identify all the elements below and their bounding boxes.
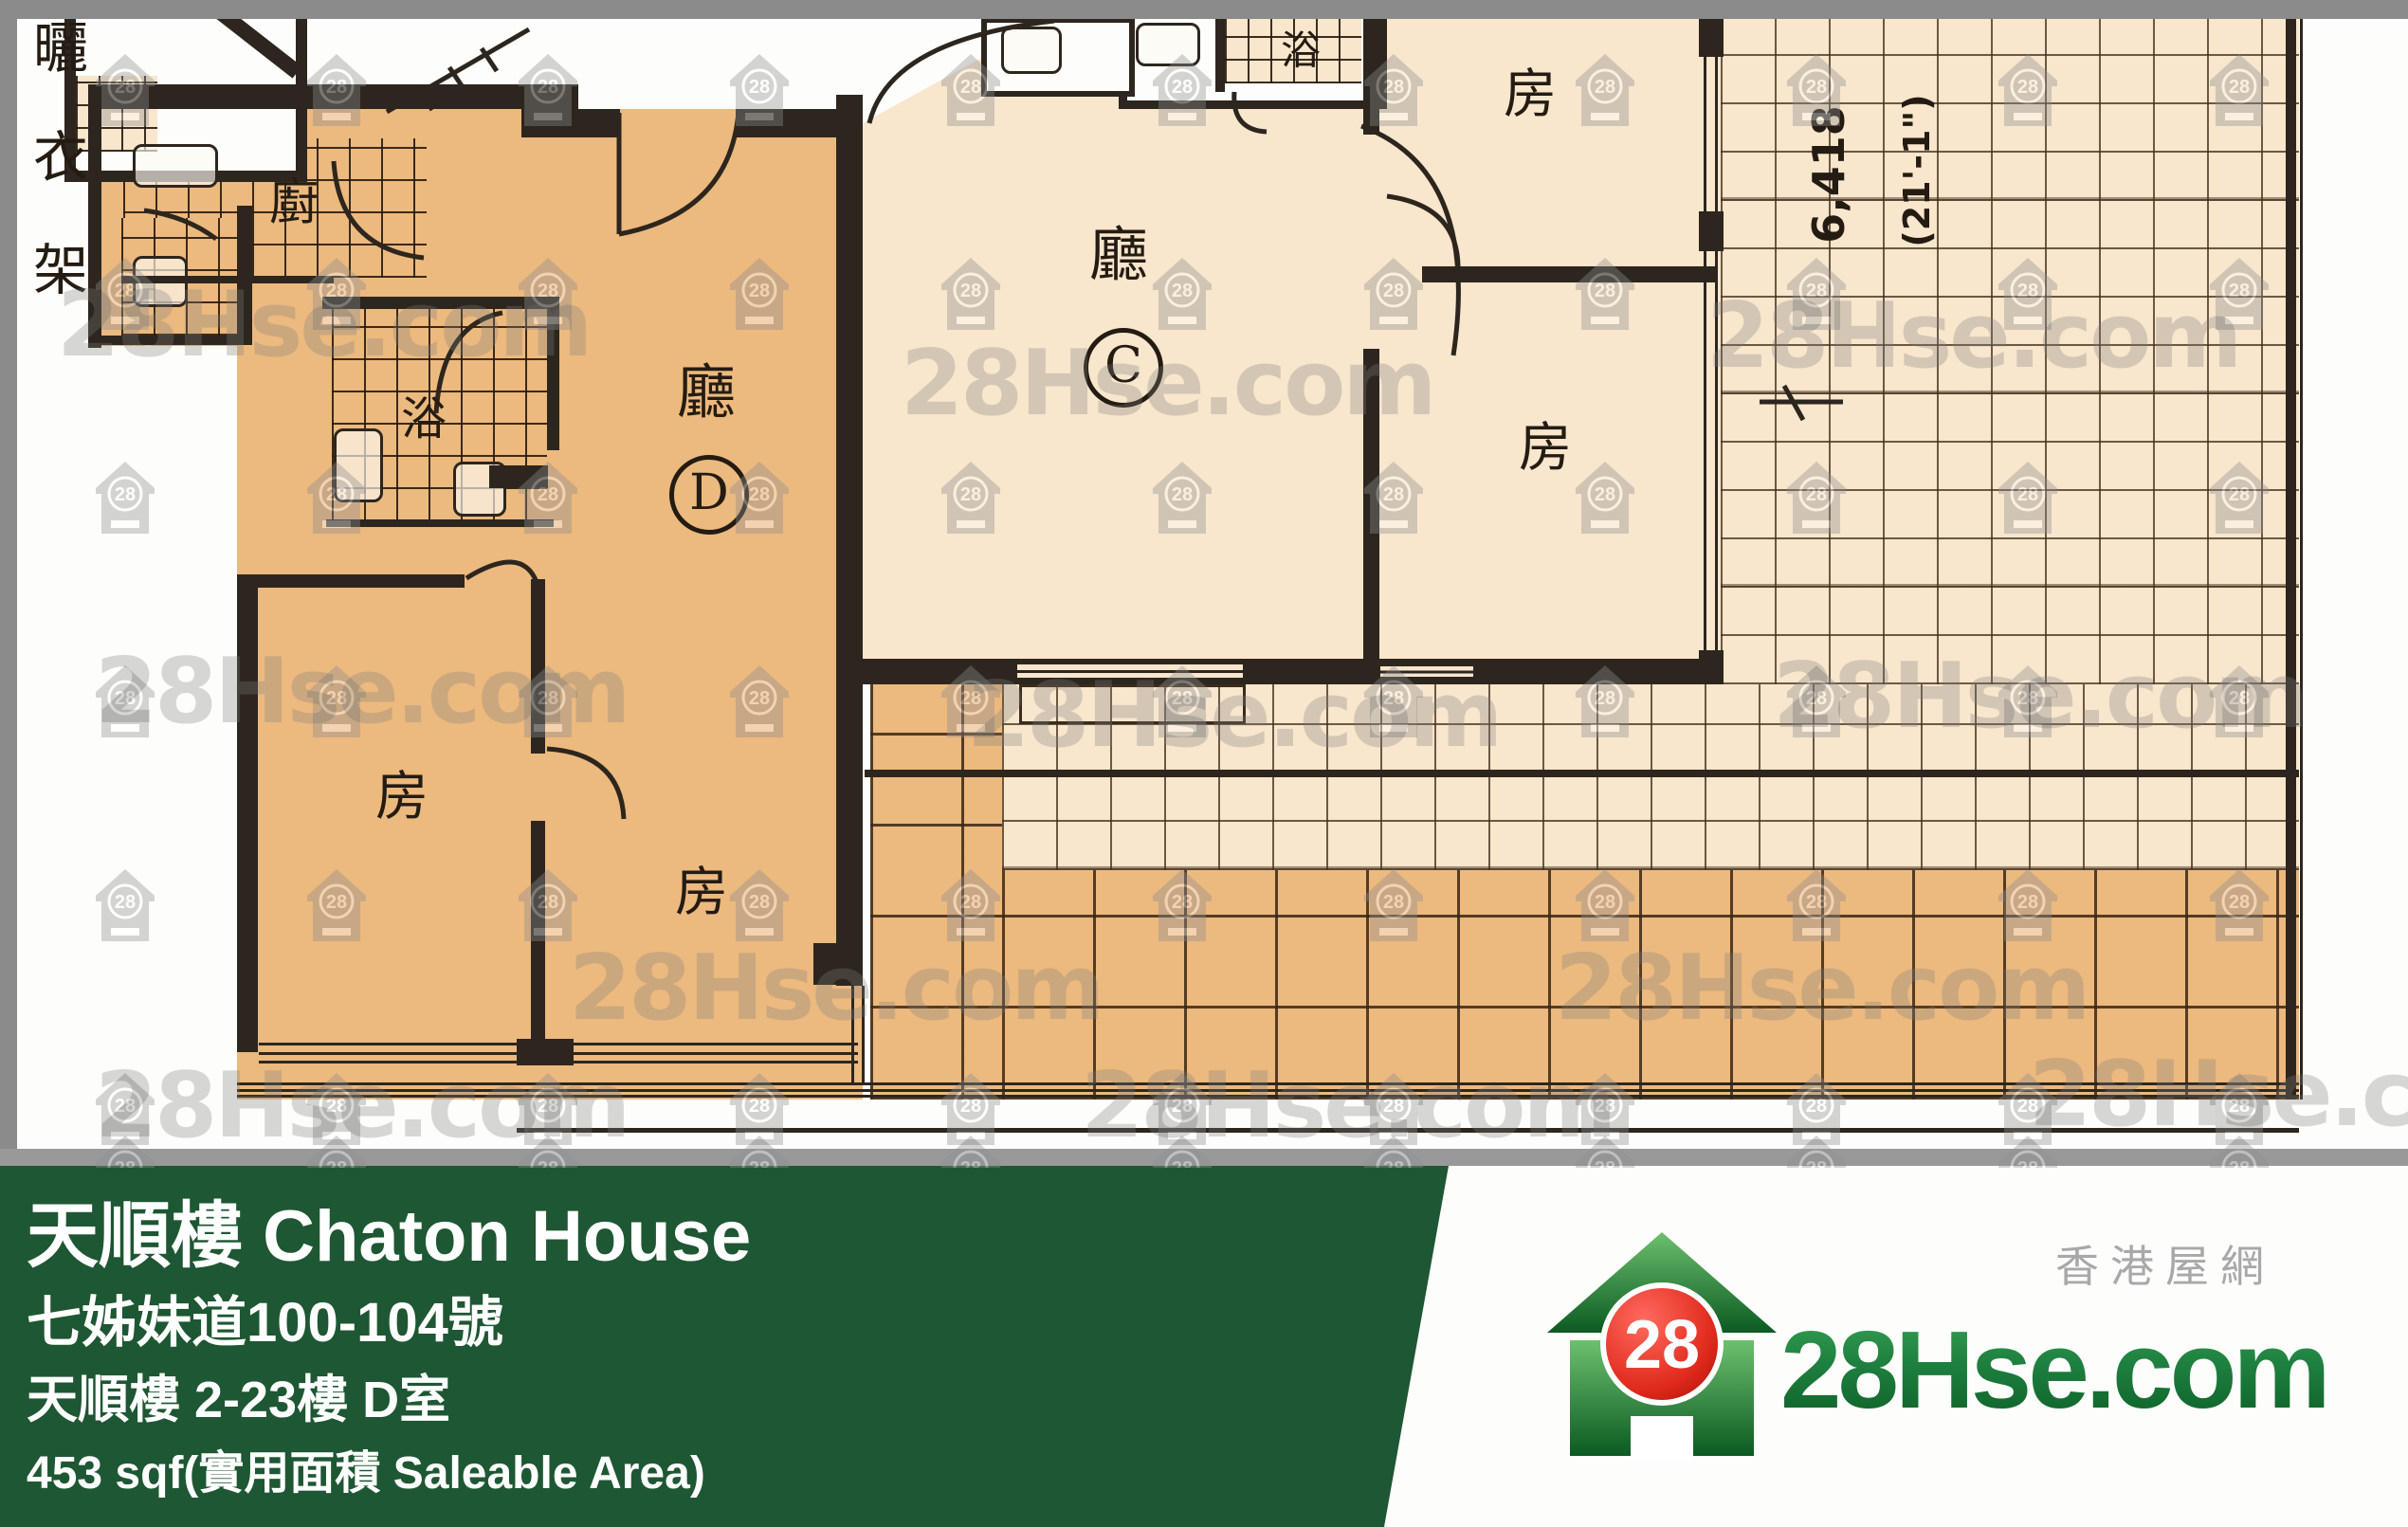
svg-text:28: 28: [1624, 1307, 1700, 1383]
bedroom-c1-label: 房: [1504, 52, 1557, 129]
bedroom-c2-label: 房: [1519, 406, 1572, 482]
window-chrome-top: [0, 0, 2408, 19]
unit-c-badge: C: [1084, 328, 1163, 408]
divider-strip: [0, 1149, 2408, 1166]
bathroom-c-door-arc: [1234, 92, 1267, 132]
toilet-door-arc: [144, 210, 216, 239]
drying-rack-label: 架: [33, 226, 88, 305]
unit-c-entrance-door: [869, 21, 1054, 123]
living-c-label: 廳: [1089, 207, 1148, 292]
logo-tagline: 香港屋網: [1991, 1232, 2275, 1295]
window-chrome-left: [0, 19, 17, 1149]
bedroom-d1-label: 房: [375, 754, 429, 831]
bedroom-d2-label: 房: [675, 850, 728, 927]
dimension-imperial: (21'-1"): [1896, 94, 1938, 246]
block-floor-flat: 天順樓 2-23樓 D室: [27, 1357, 450, 1432]
door-arcs-overlay: [0, 0, 2408, 1149]
dimension-tick: [1760, 386, 1843, 420]
floorplan-page: 曬 衣 架 廚 浴 廳 D 廳 C 浴 房 房 房 房 6,418 (21'-1…: [0, 0, 2408, 1527]
logo-house-icon: 28: [1543, 1228, 1780, 1461]
bedroom-c2-door-arc: [1387, 196, 1458, 266]
drying-rack-label: 衣: [33, 113, 88, 192]
logo-brand-text: 28Hse.com: [1780, 1306, 2327, 1433]
logo-28hse: 28: [1543, 1228, 1780, 1461]
bathroom-d-label: 浴: [401, 381, 447, 447]
saleable-area: 453 sqf(實用面積 Saleable Area): [27, 1435, 705, 1501]
kitchen-label: 廚: [269, 163, 319, 234]
bathroom-c-label: 浴: [1281, 19, 1321, 77]
corridor-door-arc: [466, 562, 537, 582]
dimension-metric: 6,418: [1803, 105, 1854, 244]
floorplan-canvas: 曬 衣 架 廚 浴 廳 D 廳 C 浴 房 房 房 房 6,418 (21'-1…: [0, 0, 2408, 1149]
bedroom-c1-door-arc: [1361, 126, 1458, 355]
living-d-label: 廳: [677, 344, 736, 429]
drying-rack-symbol: [387, 29, 529, 112]
building-title: 天順樓 Chaton House: [27, 1177, 751, 1282]
kitchen-door-arc: [334, 161, 424, 258]
unit-d-entrance-door: [619, 113, 739, 234]
unit-d-badge: D: [669, 455, 749, 535]
bedroom-d2-door-arc: [547, 749, 624, 819]
building-address: 七姊妹道100-104號: [27, 1278, 503, 1357]
